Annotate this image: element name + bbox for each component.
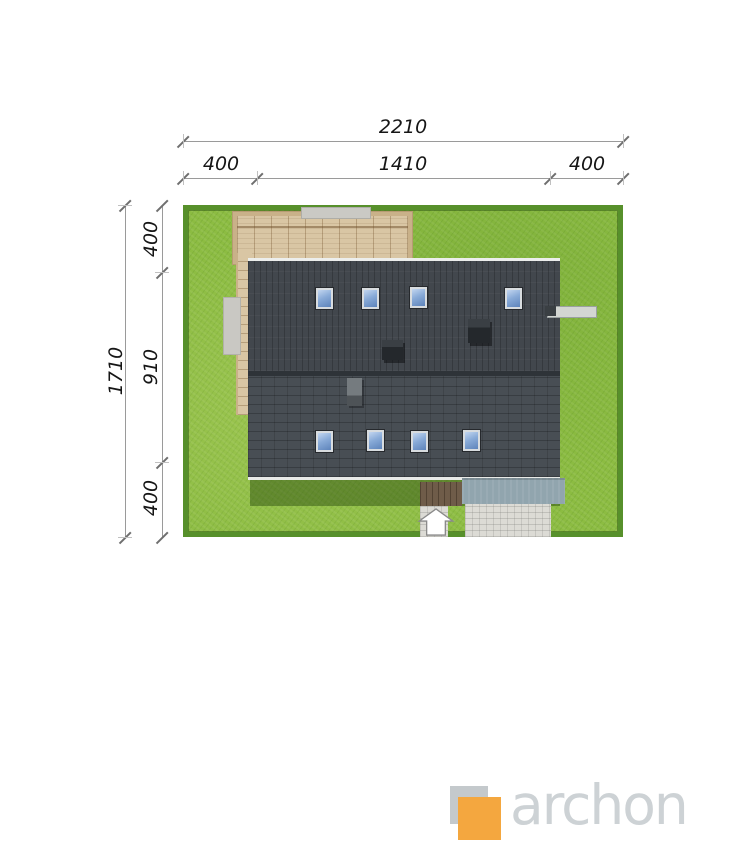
skylight [463, 430, 480, 451]
dim-top-segments-line [183, 178, 623, 179]
roof-lower-slope [248, 376, 560, 477]
chimney [382, 340, 403, 360]
dim-top-seg-left-label: 400 [176, 153, 266, 175]
brand-logo: archon [448, 776, 728, 846]
dim-top-seg-right-label: 400 [542, 153, 632, 175]
dim-ext [155, 272, 169, 273]
courtyard-paving [465, 504, 551, 537]
dim-ext [257, 171, 258, 185]
dim-left-seg-mid-label: 910 [140, 322, 162, 412]
driveway-slab [462, 478, 565, 504]
dim-ext [118, 537, 132, 538]
site-plan-drawing: 2210 400 1410 400 1710 400 910 400 [0, 0, 734, 854]
lawn-plot [183, 205, 623, 537]
chimney [468, 319, 490, 343]
skylight [410, 287, 427, 308]
skylight [367, 430, 384, 451]
dim-left-overall-label: 1710 [105, 326, 127, 416]
skylight [362, 288, 379, 309]
logo-text: archon [510, 770, 687, 840]
roof-hatch-vent [545, 306, 556, 316]
pergola-deck [233, 212, 412, 264]
dim-ext [623, 171, 624, 185]
dim-ext [623, 134, 624, 148]
dim-top-overall-line [183, 141, 623, 142]
skylight [316, 431, 333, 452]
dim-ext [118, 205, 132, 206]
roof-hatch [547, 306, 597, 318]
concrete-pad [223, 297, 241, 355]
skylight [505, 288, 522, 309]
house-roof [248, 258, 560, 480]
dim-ext [183, 171, 184, 185]
entrance-deck [420, 482, 462, 506]
stone-step [301, 207, 371, 219]
dim-ext [550, 171, 551, 185]
dim-ext [155, 462, 169, 463]
dim-left-overall-line [125, 205, 126, 537]
roof-upper-slope [248, 261, 560, 371]
entrance-arrow-icon [417, 508, 455, 536]
dim-top-seg-mid-label: 1410 [358, 153, 448, 175]
skylight [411, 431, 428, 452]
logo-square-orange [458, 797, 501, 840]
dim-ext [183, 134, 184, 148]
skylight [316, 288, 333, 309]
dim-top-overall-label: 2210 [358, 116, 448, 138]
chimney [347, 378, 362, 406]
dim-left-segments-line [162, 205, 163, 537]
